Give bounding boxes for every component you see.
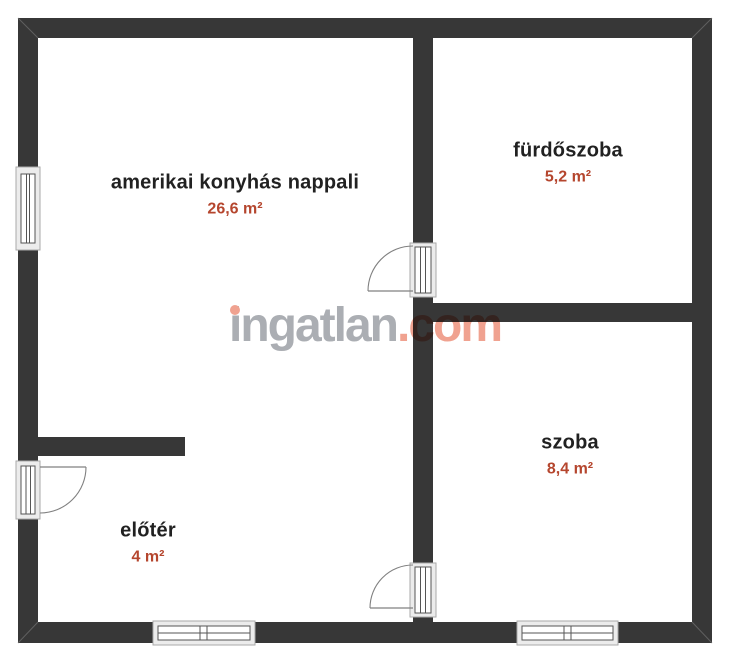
window-bottom-right-icon: [517, 621, 618, 645]
room-area: 8,4 m²: [541, 461, 599, 479]
watermark: ingatlan.com: [229, 302, 501, 350]
room-area: 5,2 m²: [513, 169, 623, 187]
room-area: 4 m²: [120, 549, 176, 567]
window-bottom-left-icon: [153, 621, 255, 645]
room-name: amerikai konyhás nappali: [111, 172, 359, 195]
room-name: előtér: [120, 520, 176, 543]
room-label-furdoszoba: fürdőszoba 5,2 m²: [513, 140, 623, 187]
room-name: szoba: [541, 432, 599, 455]
room-label-nappali: amerikai konyhás nappali 26,6 m²: [111, 172, 359, 219]
room-label-szoba: szoba 8,4 m²: [541, 432, 599, 479]
watermark-brand-text: ingatlan: [229, 299, 397, 352]
watermark-i-dot-icon: [230, 305, 240, 315]
room-area: 26,6 m²: [111, 201, 359, 219]
room-name: fürdőszoba: [513, 140, 623, 163]
room-door-icon: [370, 563, 436, 617]
entry-door-icon: [16, 461, 86, 519]
bathroom-door-icon: [368, 243, 436, 297]
watermark-tld-text: .com: [397, 299, 501, 352]
window-left-icon: [16, 167, 40, 250]
room-label-eloter: előtér 4 m²: [120, 520, 176, 567]
floorplan: amerikai konyhás nappali 26,6 m² fürdősz…: [0, 0, 730, 660]
